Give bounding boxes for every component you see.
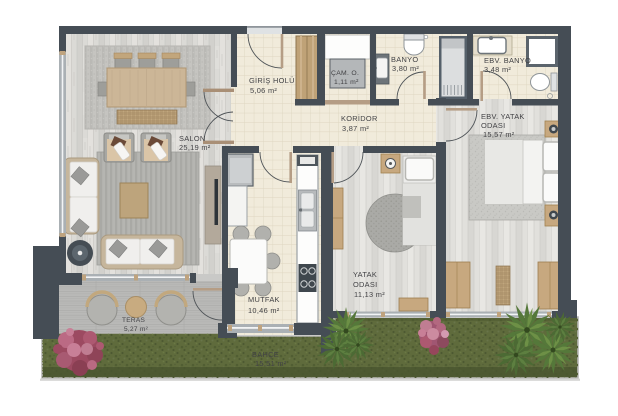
svg-text:15,57 m²: 15,57 m²: [483, 130, 515, 139]
svg-text:15,51 m²: 15,51 m²: [255, 359, 287, 368]
svg-text:25,19 m²: 25,19 m²: [179, 143, 211, 152]
svg-text:5,06 m²: 5,06 m²: [250, 86, 277, 95]
svg-text:BANYO: BANYO: [391, 55, 418, 64]
svg-text:GİRİŞ HOLÜ: GİRİŞ HOLÜ: [249, 76, 295, 85]
svg-text:MUTFAK: MUTFAK: [248, 295, 280, 304]
svg-text:EBV. BANYO: EBV. BANYO: [484, 56, 531, 65]
svg-text:BAHÇE: BAHÇE: [252, 350, 279, 359]
svg-text:KORİDOR: KORİDOR: [341, 114, 378, 123]
svg-text:11,13 m²: 11,13 m²: [354, 290, 385, 299]
svg-text:ODASI: ODASI: [353, 280, 378, 289]
svg-text:ODASI: ODASI: [481, 121, 506, 130]
svg-text:ÇAM. O.: ÇAM. O.: [331, 70, 359, 77]
svg-text:YATAK: YATAK: [353, 270, 377, 279]
svg-text:5,27 m²: 5,27 m²: [124, 326, 149, 333]
svg-text:1,11 m²: 1,11 m²: [334, 79, 359, 86]
svg-text:3,48 m²: 3,48 m²: [484, 65, 511, 74]
svg-text:SALON: SALON: [179, 134, 206, 143]
svg-text:3,87 m²: 3,87 m²: [342, 124, 369, 133]
svg-text:3,80 m²: 3,80 m²: [392, 64, 419, 73]
svg-text:TERAS: TERAS: [122, 317, 146, 324]
svg-text:EBV. YATAK: EBV. YATAK: [481, 112, 525, 121]
svg-text:10,46 m²: 10,46 m²: [248, 306, 280, 315]
